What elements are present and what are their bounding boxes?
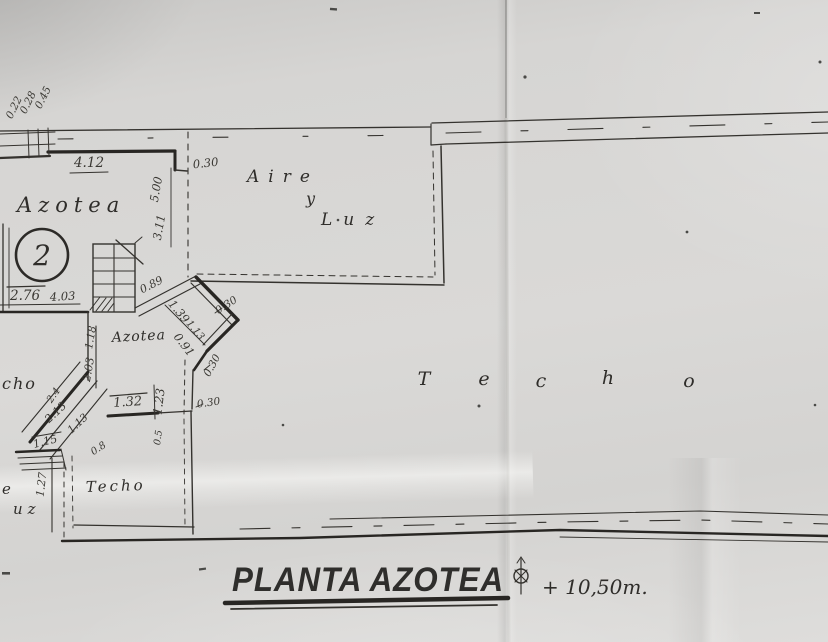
dimension-labels: 0.22 0.28 0.45 4.12 0.30 5.00 3.11 2.76 …	[4, 84, 240, 497]
drawing-title: PLANTA AZOTEA	[232, 561, 504, 599]
benchmark-icon	[514, 557, 528, 594]
dim-wall-118: 1.18	[83, 325, 99, 350]
techo-room-boundary	[72, 411, 194, 534]
techo-spread-letter-c: c	[536, 370, 547, 392]
top-parapet-lines	[0, 112, 828, 158]
techo-partial-label: cho	[2, 374, 37, 393]
azotea-main-label: Azotea	[15, 193, 125, 217]
dim-diag-08: 0.8	[89, 440, 108, 458]
dim-row-132: 1.32	[113, 394, 143, 411]
dim-col-127: 1.27	[34, 472, 50, 498]
title-block: PLANTA AZOTEA + 10,50m.	[225, 557, 648, 609]
dim-court-030: 0.30	[192, 155, 219, 172]
room-labels: Azotea 2 Azotea Aire y Luz T e c h o Tec…	[2, 167, 695, 518]
techo-spread-letter-t: T	[418, 368, 432, 390]
techo-spread-letter-o: o	[683, 370, 694, 392]
techo-small-label: Techo	[86, 476, 146, 496]
aire-partial-label: e	[2, 480, 11, 498]
dim-row-403: 4.03	[48, 289, 75, 304]
paper-specks	[2, 0, 822, 642]
techo-spread-letter-e: e	[478, 368, 489, 390]
azotea-small-label: Azotea	[109, 327, 166, 346]
dim-diag-089: 0.89	[138, 274, 166, 297]
dim-side-311: 3.11	[150, 213, 168, 241]
dim-side-500: 5.00	[147, 175, 165, 203]
roof-plan-drawing: 0.22 0.28 0.45 4.12 0.30 5.00 3.11 2.76 …	[0, 0, 828, 642]
dim-wall-203: 2.03	[80, 356, 97, 383]
dim-wall-045: 0.45	[33, 84, 54, 111]
dim-row-276: 2.76	[9, 288, 40, 304]
y-label: y	[305, 189, 316, 208]
luz-label: Luz	[320, 210, 385, 230]
dim-zig-030-c: 0.30	[196, 395, 221, 410]
stairs	[93, 237, 143, 312]
dim-top-412: 4.12	[73, 155, 104, 171]
aire-label: Aire	[245, 167, 319, 187]
scanned-roof-plan-sheet: 0.22 0.28 0.45 4.12 0.30 5.00 3.11 2.76 …	[0, 0, 828, 642]
elevation-note: + 10,50m.	[542, 575, 648, 599]
dim-col-123: 1.23	[150, 387, 167, 416]
stair-number-label: 2	[32, 239, 51, 272]
techo-spread-letter-h: h	[602, 367, 614, 389]
luz-partial-label: uz	[13, 500, 41, 518]
dim-col-05: 0.5	[152, 429, 165, 445]
